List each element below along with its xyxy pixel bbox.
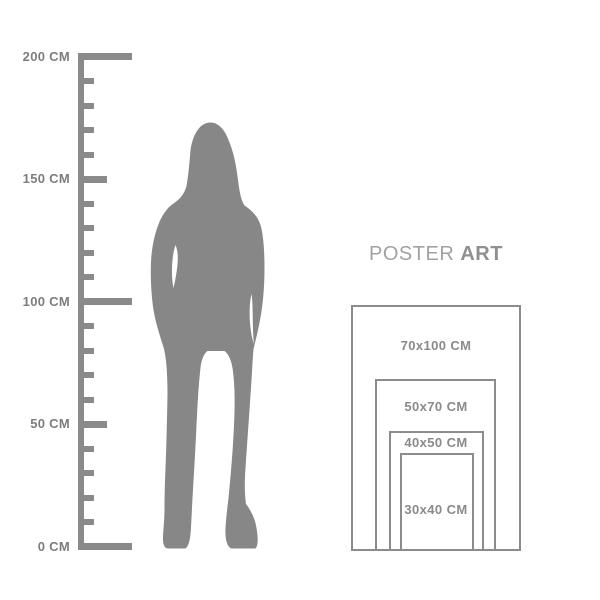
poster-size-guide: 200 CM150 CM100 CM50 CM0 CM POSTER ART 7… — [0, 0, 600, 600]
size-label-70x100: 70x100 CM — [351, 339, 521, 353]
poster-title-bold: ART — [460, 243, 503, 265]
poster-art-title: POSTER ART — [351, 244, 521, 264]
poster-title-regular: POSTER — [369, 243, 454, 265]
size-label-30x40: 30x40 CM — [351, 503, 521, 517]
size-label-40x50: 40x50 CM — [351, 436, 521, 450]
size-label-50x70: 50x70 CM — [351, 400, 521, 414]
